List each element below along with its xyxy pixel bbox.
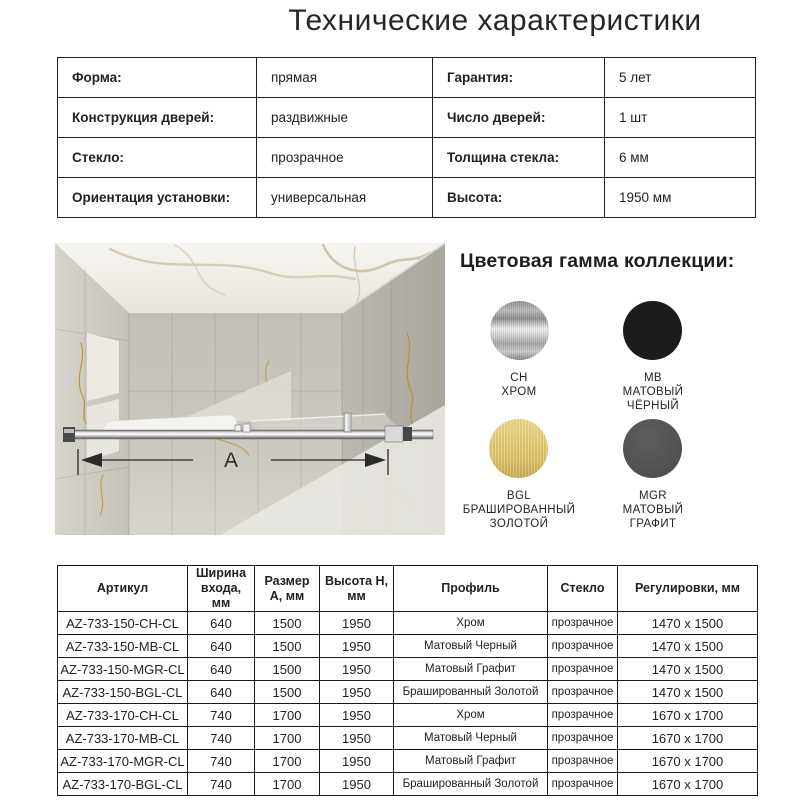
swatch-name-line: ЗОЛОТОЙ: [463, 517, 576, 531]
dimension-label: А: [224, 449, 238, 472]
product-row: AZ-733-150-BGL-CL 640 1500 1950 Браширов…: [58, 681, 758, 704]
cell-entry-width: 740: [188, 727, 255, 750]
swatch-matte-black: MB МАТОВЫЙ ЧЁРНЫЙ: [623, 301, 684, 413]
spec-label: Стекло:: [58, 138, 257, 178]
swatch-matte-graphite: MGR МАТОВЫЙ ГРАФИТ: [623, 419, 684, 531]
spec-value: 1 шт: [605, 98, 756, 138]
cell-profile: Брашированный Золотой: [394, 681, 548, 704]
cell-profile: Хром: [394, 704, 548, 727]
cell-profile: Матовый Графит: [394, 658, 548, 681]
cell-glass: прозрачное: [548, 704, 618, 727]
cell-adjustments: 1670 x 1700: [618, 704, 758, 727]
cell-size-a: 1500: [255, 658, 320, 681]
cell-adjustments: 1670 x 1700: [618, 750, 758, 773]
cell-glass: прозрачное: [548, 773, 618, 796]
product-row: AZ-733-150-MGR-CL 640 1500 1950 Матовый …: [58, 658, 758, 681]
cell-entry-width: 740: [188, 750, 255, 773]
cell-size-a: 1700: [255, 773, 320, 796]
swatch-name-line: ЧЁРНЫЙ: [623, 399, 684, 413]
cell-profile: Хром: [394, 612, 548, 635]
header-entry-width: Ширина входа, мм: [188, 566, 255, 612]
header-height-h: Высота Н, мм: [320, 566, 394, 612]
swatch-name-line: МАТОВЫЙ: [623, 385, 684, 399]
cell-height-h: 1950: [320, 750, 394, 773]
products-header-row: Артикул Ширина входа, мм Размер А, мм Вы…: [58, 566, 758, 612]
cell-height-h: 1950: [320, 658, 394, 681]
cell-height-h: 1950: [320, 727, 394, 750]
cell-glass: прозрачное: [548, 612, 618, 635]
swatch-name-line: МАТОВЫЙ: [623, 503, 684, 517]
cell-artikul: AZ-733-170-BGL-CL: [58, 773, 188, 796]
cell-height-h: 1950: [320, 681, 394, 704]
cell-glass: прозрачное: [548, 635, 618, 658]
cell-adjustments: 1470 x 1500: [618, 612, 758, 635]
cell-size-a: 1500: [255, 681, 320, 704]
product-row: AZ-733-150-MB-CL 640 1500 1950 Матовый Ч…: [58, 635, 758, 658]
swatch-code: MB: [623, 371, 684, 385]
spec-value: 5 лет: [605, 58, 756, 98]
product-row: AZ-733-170-CH-CL 740 1700 1950 Хром проз…: [58, 704, 758, 727]
bathroom-scene: А: [55, 243, 445, 535]
swatch-code: BGL: [463, 489, 576, 503]
header-artikul: Артикул: [58, 566, 188, 612]
cell-profile: Матовый Графит: [394, 750, 548, 773]
cell-entry-width: 740: [188, 704, 255, 727]
cell-artikul: AZ-733-170-CH-CL: [58, 704, 188, 727]
swatch-name-line: ХРОМ: [501, 385, 536, 399]
chrome-color-swatch-icon: [490, 301, 549, 360]
cell-size-a: 1700: [255, 750, 320, 773]
cell-size-a: 1700: [255, 727, 320, 750]
header-size-a: Размер А, мм: [255, 566, 320, 612]
cell-glass: прозрачное: [548, 658, 618, 681]
spec-label: Форма:: [58, 58, 257, 98]
cell-artikul: AZ-733-150-BGL-CL: [58, 681, 188, 704]
spec-label: Высота:: [433, 178, 605, 218]
product-row: AZ-733-170-BGL-CL 740 1700 1950 Браширов…: [58, 773, 758, 796]
swatch-name-line: БРАШИРОВАННЫЙ: [463, 503, 576, 517]
page-title: Технические характеристики: [190, 4, 800, 38]
cell-profile: Брашированный Золотой: [394, 773, 548, 796]
swatch-grid: CH ХРОМ MB МАТОВЫЙ ЧЁРНЫЙ BGL БРАШИРОВАН…: [452, 301, 720, 531]
spec-value: раздвижные: [257, 98, 433, 138]
swatch-brushed-gold: BGL БРАШИРОВАННЫЙ ЗОЛОТОЙ: [463, 419, 576, 531]
cell-adjustments: 1470 x 1500: [618, 681, 758, 704]
spec-table: Форма: прямая Гарантия: 5 лет Конструкци…: [57, 57, 756, 218]
cell-size-a: 1500: [255, 612, 320, 635]
spec-row: Ориентация установки: универсальная Высо…: [58, 178, 756, 218]
cell-profile: Матовый Черный: [394, 635, 548, 658]
cell-adjustments: 1470 x 1500: [618, 658, 758, 681]
spec-value: прозрачное: [257, 138, 433, 178]
cell-entry-width: 640: [188, 612, 255, 635]
spec-value: 1950 мм: [605, 178, 756, 218]
spec-row: Стекло: прозрачное Толщина стекла: 6 мм: [58, 138, 756, 178]
cell-adjustments: 1470 x 1500: [618, 635, 758, 658]
matte-graphite-color-swatch-icon: [623, 419, 682, 478]
cell-size-a: 1500: [255, 635, 320, 658]
cell-height-h: 1950: [320, 773, 394, 796]
spec-row: Конструкция дверей: раздвижные Число две…: [58, 98, 756, 138]
cell-height-h: 1950: [320, 704, 394, 727]
cell-artikul: AZ-733-170-MGR-CL: [58, 750, 188, 773]
cell-entry-width: 640: [188, 681, 255, 704]
cell-profile: Матовый Черный: [394, 727, 548, 750]
swatch-code: CH: [501, 371, 536, 385]
cell-artikul: AZ-733-150-MB-CL: [58, 635, 188, 658]
cell-height-h: 1950: [320, 635, 394, 658]
cell-glass: прозрачное: [548, 727, 618, 750]
product-row: AZ-733-150-CH-CL 640 1500 1950 Хром проз…: [58, 612, 758, 635]
cell-height-h: 1950: [320, 612, 394, 635]
swatch-chrome: CH ХРОМ: [490, 301, 549, 413]
cell-artikul: AZ-733-150-MGR-CL: [58, 658, 188, 681]
cell-adjustments: 1670 x 1700: [618, 727, 758, 750]
spec-value: 6 мм: [605, 138, 756, 178]
matte-black-color-swatch-icon: [623, 301, 682, 360]
swatch-name-line: ГРАФИТ: [623, 517, 684, 531]
product-image: А: [55, 243, 445, 535]
cell-glass: прозрачное: [548, 750, 618, 773]
spec-label: Толщина стекла:: [433, 138, 605, 178]
header-glass: Стекло: [548, 566, 618, 612]
cell-artikul: AZ-733-170-MB-CL: [58, 727, 188, 750]
spec-value: прямая: [257, 58, 433, 98]
spec-label: Число дверей:: [433, 98, 605, 138]
header-profile: Профиль: [394, 566, 548, 612]
header-adjustments: Регулировки, мм: [618, 566, 758, 612]
product-row: AZ-733-170-MB-CL 740 1700 1950 Матовый Ч…: [58, 727, 758, 750]
product-row: AZ-733-170-MGR-CL 740 1700 1950 Матовый …: [58, 750, 758, 773]
brushed-gold-color-swatch-icon: [489, 419, 548, 478]
products-table: Артикул Ширина входа, мм Размер А, мм Вы…: [57, 565, 758, 796]
spec-label: Гарантия:: [433, 58, 605, 98]
cell-entry-width: 640: [188, 658, 255, 681]
cell-glass: прозрачное: [548, 681, 618, 704]
cell-artikul: AZ-733-150-CH-CL: [58, 612, 188, 635]
cell-entry-width: 740: [188, 773, 255, 796]
spec-value: универсальная: [257, 178, 433, 218]
spec-label: Конструкция дверей:: [58, 98, 257, 138]
swatch-code: MGR: [623, 489, 684, 503]
cell-entry-width: 640: [188, 635, 255, 658]
spec-label: Ориентация установки:: [58, 178, 257, 218]
cell-size-a: 1700: [255, 704, 320, 727]
cell-adjustments: 1670 x 1700: [618, 773, 758, 796]
colors-section-title: Цветовая гамма коллекции:: [460, 250, 790, 273]
spec-row: Форма: прямая Гарантия: 5 лет: [58, 58, 756, 98]
